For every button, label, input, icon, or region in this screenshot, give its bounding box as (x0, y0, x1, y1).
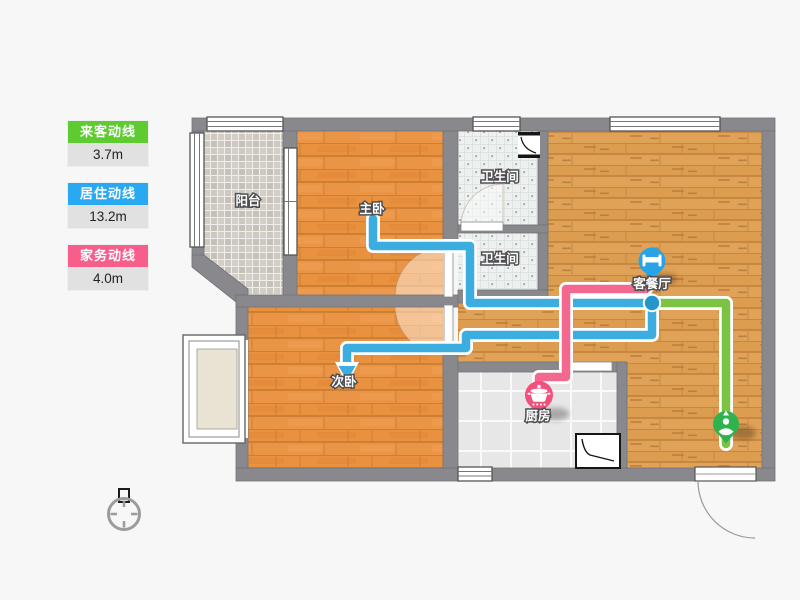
legend-housework-route: 家务动线 4.0m (68, 245, 148, 290)
route-junction (643, 294, 661, 312)
legend-housework-label: 家务动线 (68, 245, 148, 267)
sink-symbol (576, 434, 620, 468)
legend-guest-route: 来客动线 3.7m (68, 121, 148, 166)
kitchen-label: 厨房 (525, 408, 550, 423)
bathroom-top-window (473, 117, 520, 131)
kitchen-door-leaf (570, 362, 612, 371)
master-bedroom-label: 主卧 (359, 201, 385, 216)
balcony-left-window (190, 133, 204, 247)
living-top-window (610, 117, 720, 131)
balcony-bedroom-window (284, 148, 297, 255)
second-bedroom-label: 次卧 (331, 374, 357, 389)
living-dining-label: 客餐厅 (632, 276, 671, 291)
bathroom1-label: 卫生间 (481, 169, 519, 184)
legend-living-value: 13.2m (68, 205, 148, 228)
entrance-door (695, 467, 756, 538)
balcony-label: 阳台 (235, 193, 260, 208)
balcony-top-window (207, 117, 283, 131)
shower-symbol (518, 132, 540, 158)
legend-guest-value: 3.7m (68, 143, 148, 166)
bathroom1-door-leaf (461, 222, 503, 231)
legend-living-route: 居住动线 13.2m (68, 183, 148, 228)
legend-housework-value: 4.0m (68, 267, 148, 290)
bathroom2-label: 卫生间 (481, 251, 519, 266)
kitchen-bottom-window (458, 467, 492, 481)
floorplan-stage: 阳台 主卧 卫生间 卫生间 客餐厅 次卧 厨房 来客动线 3.7m 居住动线 1… (0, 0, 800, 600)
bay-window (183, 335, 248, 443)
legend-guest-label: 来客动线 (68, 121, 148, 143)
master-door-leaf (444, 247, 453, 297)
north-compass-icon (109, 489, 140, 530)
route-legend: 来客动线 3.7m 居住动线 13.2m 家务动线 4.0m (68, 121, 148, 307)
legend-living-label: 居住动线 (68, 183, 148, 205)
